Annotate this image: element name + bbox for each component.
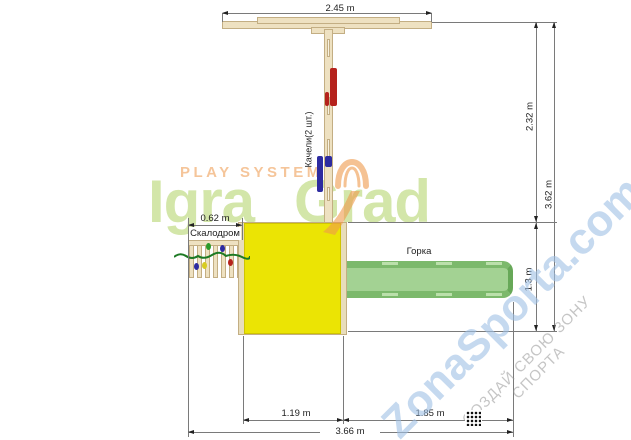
dim-label-platform-width: 1.19 m — [266, 407, 326, 420]
dim-label-overall-width: 3.66 m — [320, 425, 380, 438]
brand-arch-logo-icon — [315, 146, 375, 241]
playground-plan-drawing: PLAY SYSTEM Igra Grad — [0, 0, 631, 440]
dim-arrow — [507, 418, 513, 422]
dim-arrow — [426, 11, 432, 15]
climb-hold-yellow — [202, 262, 207, 269]
climb-hold-blue — [194, 263, 199, 270]
post-slot — [327, 39, 330, 57]
ext-line-platform-left — [243, 336, 244, 424]
dim-arrow — [534, 223, 538, 229]
dim-arrow — [534, 325, 538, 331]
ext-tick — [242, 218, 243, 240]
ext-line-platform-top — [348, 222, 557, 223]
dim-arrow — [507, 430, 513, 434]
dim-label-climbwall-width: 0.62 m — [186, 212, 244, 225]
slide-rail-gap — [486, 262, 502, 265]
label-slide: Горка — [389, 245, 449, 258]
dim-arrow — [222, 11, 228, 15]
swing-crossbeam-upper — [257, 17, 400, 24]
ext-line-beam — [432, 22, 557, 23]
dim-line-platform-width — [243, 420, 343, 421]
dim-label-overall-depth: 3.62 m — [543, 165, 556, 225]
dim-arrow — [243, 418, 249, 422]
dot-grid-mark — [465, 410, 482, 427]
slide-rail-gap — [436, 262, 452, 265]
dim-arrow — [552, 22, 556, 28]
swing-seat-red — [330, 68, 337, 106]
slide-rail-gap — [382, 293, 398, 296]
dim-arrow — [534, 22, 538, 28]
label-climbing-wall: Скалодром — [189, 227, 241, 240]
dim-arrow — [343, 418, 349, 422]
dim-label-swing-depth: 2.32 m — [524, 87, 537, 147]
label-swings: Качели(2 шт.) — [303, 80, 316, 200]
dim-line-climbwall — [188, 225, 242, 226]
climb-rope-wave — [174, 249, 250, 263]
ext-line-platform-right — [343, 336, 344, 424]
slide-rail-gap — [382, 262, 398, 265]
swing-rope-red — [325, 92, 329, 106]
slide-rail-gap — [436, 293, 452, 296]
dim-arrow — [534, 216, 538, 222]
dim-arrow — [188, 430, 194, 434]
dim-label-crossbeam-width: 2.45 m — [310, 2, 370, 15]
ext-line-left — [188, 218, 189, 437]
